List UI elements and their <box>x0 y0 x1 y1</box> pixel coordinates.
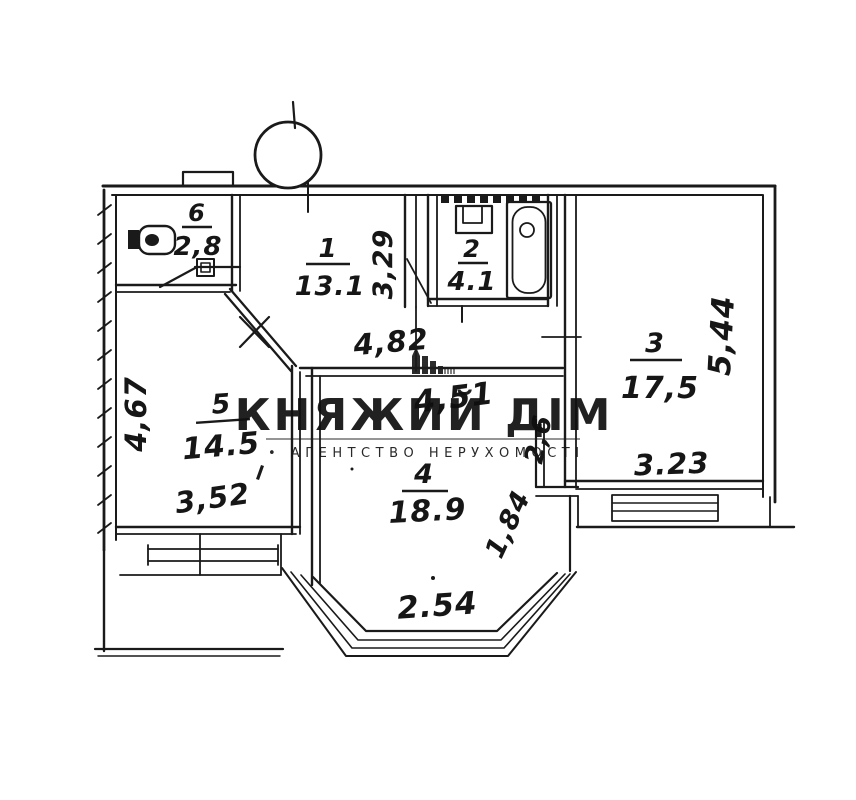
room-6-number: 6 <box>188 199 206 227</box>
cistern-fixture <box>456 206 492 233</box>
room-2-area: 4.1 <box>446 267 496 297</box>
room-3-area: 17,5 <box>621 371 699 406</box>
room-5-number: 5 <box>210 388 232 420</box>
agency-title: КНЯЖИЙ ДІМ <box>235 388 614 441</box>
window-room3 <box>612 495 718 521</box>
room-1-area: 13.1 <box>295 271 366 302</box>
floorplan-page: 6 2,8 1 13.1 2 4.1 3 17,5 5 14.5 4 18.9 … <box>0 0 856 800</box>
room-6-area: 2,8 <box>173 232 222 262</box>
dim-3-52: 3,52 <box>173 476 253 520</box>
dim-5-44: 5,44 <box>702 294 742 376</box>
dim-3-23: 3.23 <box>633 446 710 483</box>
balcony <box>95 575 283 656</box>
door-x-mark <box>240 317 269 347</box>
window-room5 <box>148 534 281 575</box>
column-circle <box>255 102 321 188</box>
room-4-area: 18.9 <box>388 492 468 531</box>
dim-3-29: 3,29 <box>368 229 399 300</box>
agency-subtitle: • АГЕНТСТВО НЕРУХОМОСТІ <box>268 446 585 461</box>
dim-1-84: 1,84 <box>479 486 537 563</box>
dim-2-54: 2.54 <box>396 585 479 627</box>
toilet-fixture <box>128 226 175 254</box>
room-1-number: 1 <box>318 234 337 264</box>
floor-plan-svg: 6 2,8 1 13.1 2 4.1 3 17,5 5 14.5 4 18.9 … <box>0 0 856 800</box>
room-2-number: 2 <box>463 235 481 263</box>
room-3-number: 3 <box>645 328 665 359</box>
bathtub-fixture <box>507 202 551 298</box>
diagonal-wall <box>225 289 296 371</box>
dim-4-67: 4,67 <box>119 376 153 453</box>
room-4-number: 4 <box>413 459 434 490</box>
